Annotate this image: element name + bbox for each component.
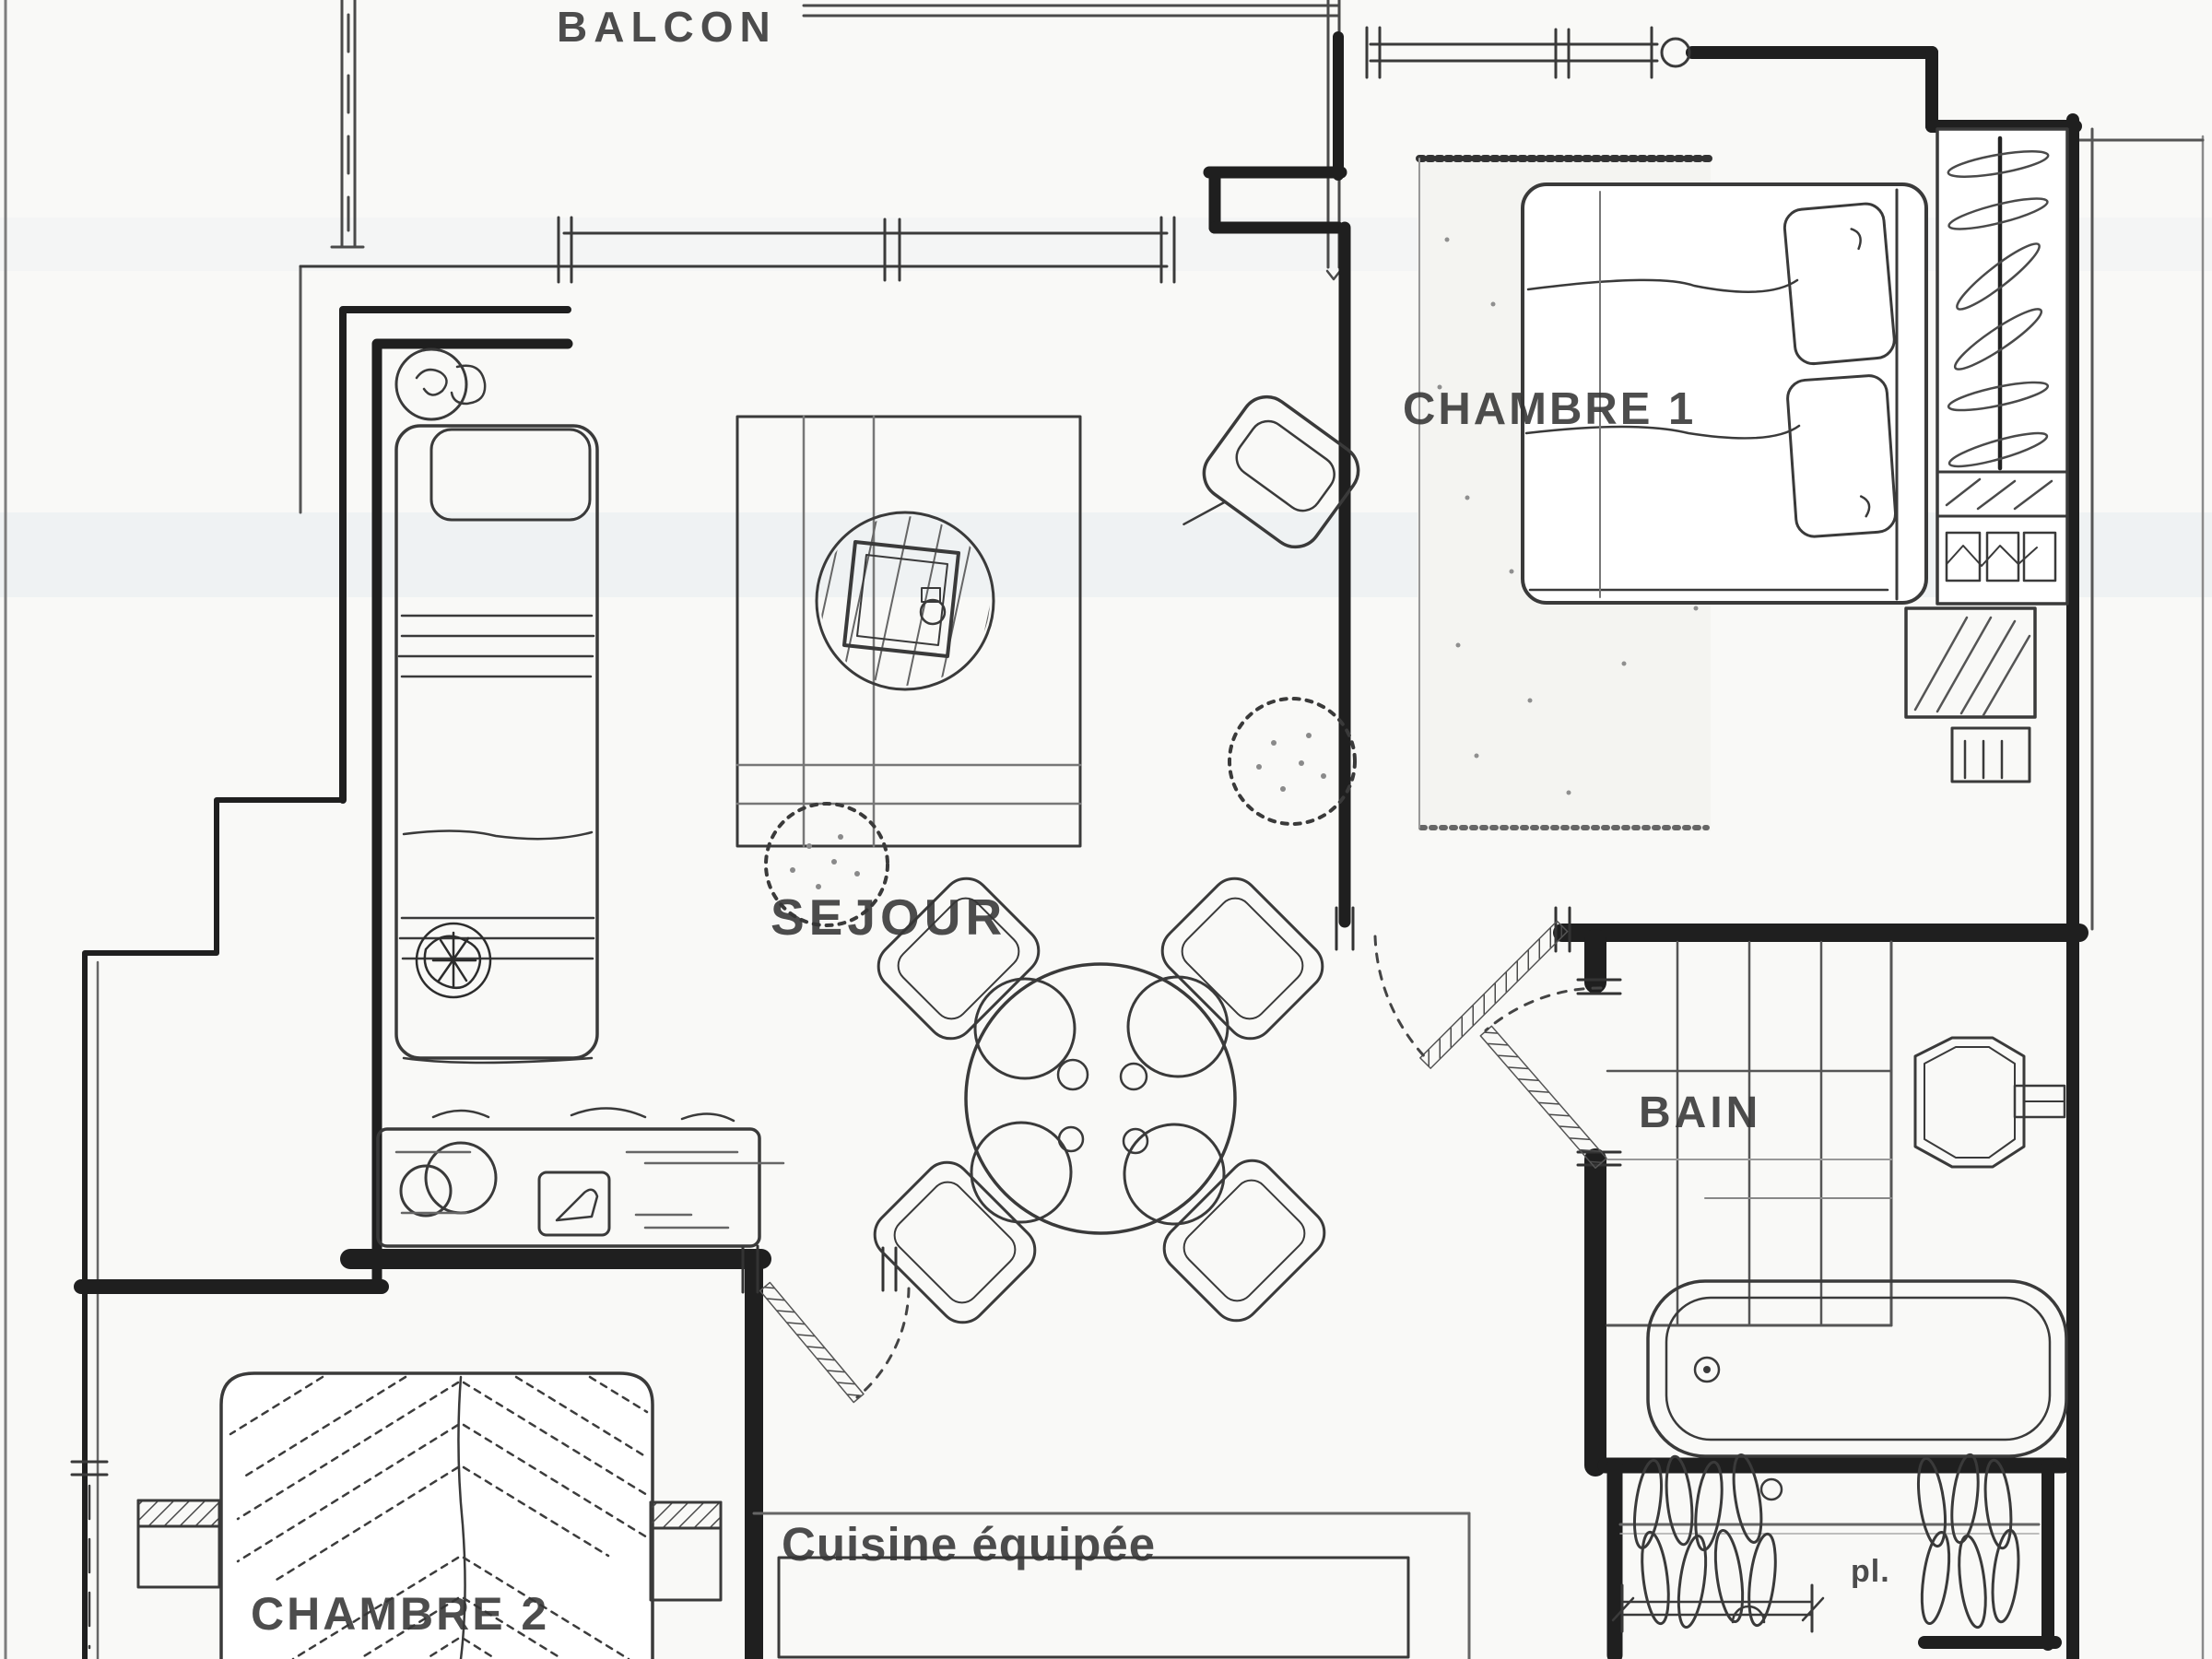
bain-sink [1915,1038,2065,1167]
room-label-chambre2: CHAMBRE 2 [251,1591,549,1637]
bain-fixtures [1607,942,2066,1456]
chambre1-door [1336,908,1570,1068]
chambre2-nightstand-right [651,1502,721,1600]
chambre2-nightstand-left [138,1500,219,1587]
room-label-bain: BAIN [1639,1091,1761,1135]
room-label-cuisine: Cuisine équipée [782,1521,1156,1568]
chambre1-furniture [1418,129,2067,831]
room-label-chambre1: CHAMBRE 1 [1403,387,1696,432]
room-label-sejour: SEJOUR [771,892,1006,943]
sejour-rug [737,417,1080,846]
cuisine-door [743,1246,909,1403]
doors [743,908,1620,1403]
cuisine-fixtures [779,1558,1408,1657]
sideboard [378,1108,783,1246]
chambre1-window [1367,28,1689,77]
room-label-placard: pl. [1851,1556,1890,1587]
closet [1613,1453,2039,1631]
room-label-balcon: BALCON [557,6,777,48]
floor-plan: BALCON CHAMBRE 1 SEJOUR BAIN Cuisine équ… [0,0,2212,1659]
sejour-furniture [378,349,1369,1333]
dining-table [966,964,1235,1233]
chambre1-nightstand [1906,608,2035,782]
plant-side-table [396,349,485,419]
sofa-plant [417,924,490,997]
pouf-2 [1230,699,1355,824]
chambre1-wardrobe [1937,129,2067,604]
kitchen-counter [779,1558,1408,1657]
floor-plan-drawing [0,0,2212,1659]
bain-door [1480,980,1620,1168]
bain-bathtub [1648,1281,2066,1456]
chambre2-window [72,1462,107,1648]
